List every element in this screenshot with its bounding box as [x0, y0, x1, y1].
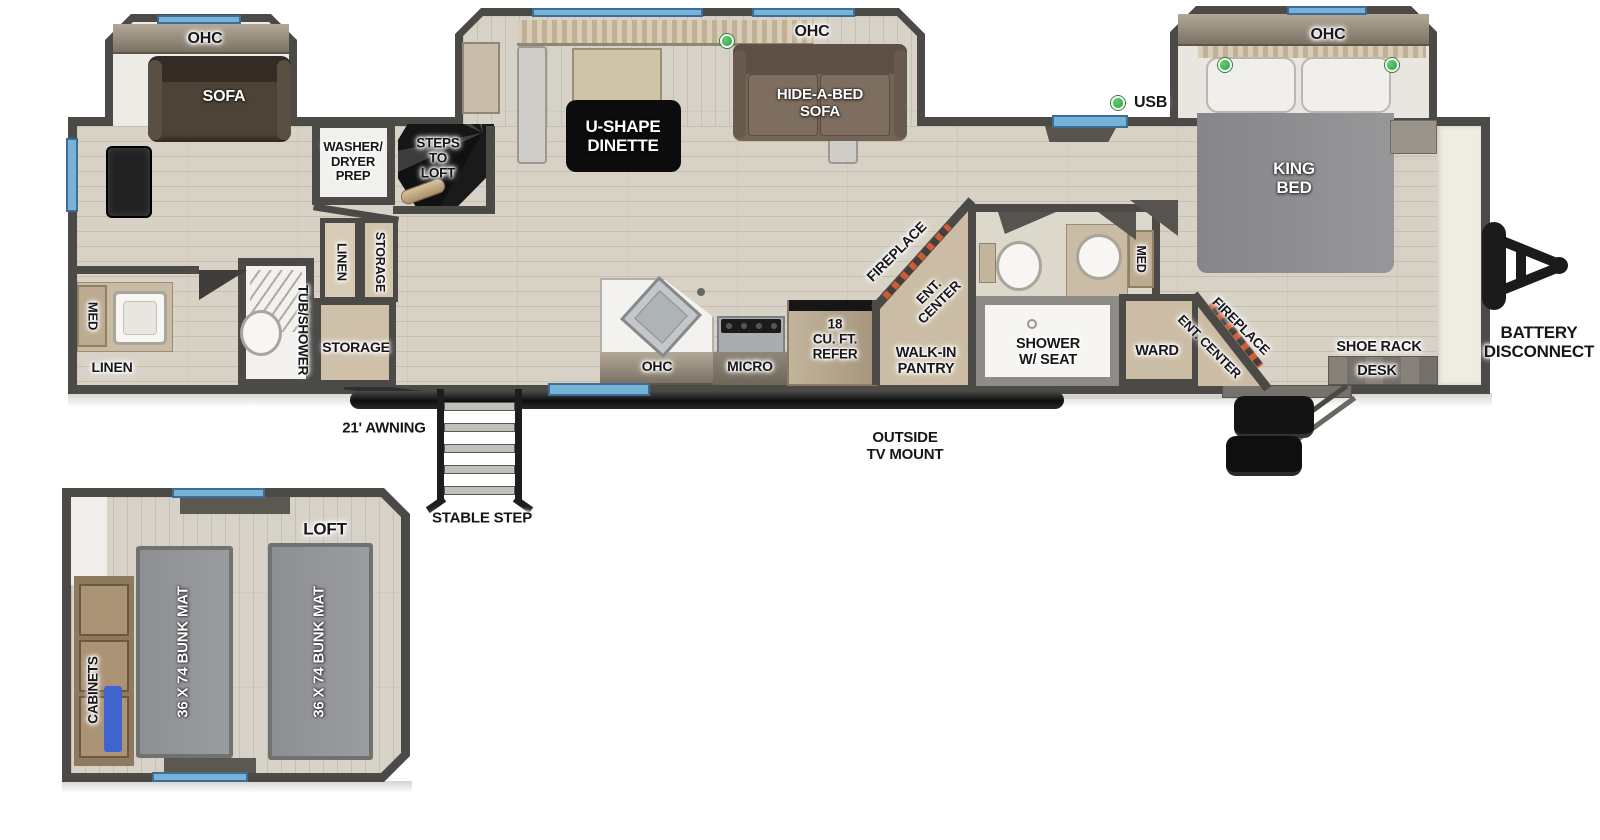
- refrigerator-top: [789, 300, 876, 311]
- steps-room-wall-bottom: [393, 206, 495, 214]
- hitch-coupler: [1550, 257, 1568, 274]
- stable-step-rail-left: [437, 389, 444, 503]
- mid-med-label: MED: [1134, 245, 1148, 272]
- hide-a-bed-arm-left: [733, 50, 746, 138]
- walk-in-pantry-label: WALK-IN PANTRY: [896, 345, 957, 377]
- outside-tv-label: OUTSIDE TV MOUNT: [867, 430, 944, 464]
- mid-toilet: [996, 241, 1042, 291]
- bedroom-shelf: [1390, 120, 1437, 154]
- rear-ohc-label: OHC: [188, 30, 223, 48]
- entry-step-1: [1234, 396, 1314, 438]
- rear-med-label: MED: [85, 302, 100, 330]
- kitchen-faucet: [697, 288, 705, 296]
- rear-sofa-arm-right: [277, 60, 291, 140]
- micro-label: MICRO: [727, 359, 773, 375]
- steps-to-loft-label: STEPS TO LOFT: [416, 135, 459, 180]
- rear-sofa-arm-left: [148, 60, 162, 140]
- mid-bath-sink: [1076, 234, 1122, 280]
- kitchen-sink-basin: [634, 290, 688, 344]
- shower-drain: [1027, 319, 1037, 329]
- ward-label: WARD: [1135, 343, 1179, 359]
- tub-shower-label: TUB/SHOWER: [295, 285, 310, 375]
- king-bed-label: KING BED: [1273, 159, 1315, 197]
- pantry-left-wall: [872, 300, 880, 385]
- dinette-cabinet: [462, 42, 500, 114]
- hide-a-bed-label: HIDE-A-BED SOFA: [777, 87, 863, 121]
- sofa-label: SOFA: [203, 88, 246, 106]
- loft-shadow: [62, 781, 412, 793]
- front-cap-floor: [1437, 126, 1481, 385]
- dinette-window-2: [752, 8, 855, 17]
- storage-room-label: STORAGE: [322, 340, 390, 356]
- rv-floorplan: OHC SOFA U-SHAPE DINETTE HIDE-A-BED SOFA…: [0, 0, 1600, 840]
- loft-label: LOFT: [303, 519, 347, 538]
- stable-step-label: STABLE STEP: [432, 511, 532, 528]
- mid-toilet-tank: [979, 243, 996, 283]
- entry-step-2: [1226, 436, 1302, 476]
- king-ohc-label: OHC: [1311, 26, 1346, 44]
- usb-dot-dinette: [720, 34, 734, 48]
- loft-ledge-top: [180, 497, 290, 514]
- steps-room-wall-right: [486, 126, 495, 212]
- loft-blue-item: [104, 686, 122, 752]
- stable-step-rung-2: [444, 423, 515, 432]
- battery-disconnect-label: BATTERY DISCONNECT: [1484, 323, 1594, 361]
- hide-a-bed-ohc-label: OHC: [795, 23, 830, 41]
- bottom-wall-window: [548, 383, 650, 396]
- usb-dot-entry: [1111, 96, 1125, 110]
- rear-tv: [106, 146, 152, 218]
- u-dinette-label: U-SHAPE DINETTE: [585, 117, 660, 155]
- stable-step-rung-3: [444, 444, 515, 453]
- king-ohc-cabinet: [1178, 14, 1429, 46]
- linen-closet-label: LINEN: [334, 243, 349, 281]
- loft-window-bottom: [152, 772, 248, 782]
- rear-linen-label: LINEN: [91, 360, 132, 376]
- cooktop: [721, 319, 781, 333]
- rear-bath-wall: [77, 266, 199, 274]
- usb-dot-bed-right: [1385, 58, 1399, 72]
- hide-a-bed-arm-right: [894, 50, 907, 138]
- dinette-blinds: [517, 20, 813, 46]
- entry-door-swing: [1045, 126, 1117, 142]
- usb-dot-bed-left: [1218, 58, 1232, 72]
- hitch-cross: [1516, 248, 1526, 282]
- shoe-rack-label: SHOE RACK: [1336, 339, 1421, 355]
- dinette-window-1: [532, 8, 703, 17]
- rear-bath-sink-basin: [123, 301, 157, 335]
- hide-a-bed-back: [733, 44, 907, 74]
- dinette-bench-left: [517, 46, 547, 164]
- loft-ledge-bottom: [164, 758, 256, 773]
- rear-slide-window: [157, 15, 241, 24]
- loft-window-top: [172, 488, 265, 498]
- cabinets-label: CABINETS: [85, 656, 100, 723]
- stable-step-rung-1: [444, 402, 515, 411]
- loft-cabinet-box-1: [79, 584, 129, 636]
- washer-dryer-label: WASHER/ DRYER PREP: [323, 140, 382, 184]
- rear-toilet: [240, 310, 282, 356]
- usb-label: USB: [1134, 94, 1167, 112]
- stable-step-rung-5: [444, 486, 515, 495]
- storage-closet-label: STORAGE: [373, 232, 387, 292]
- stable-step-rung-4: [444, 465, 515, 474]
- shower-seat-label: SHOWER W/ SEAT: [1016, 336, 1080, 368]
- loft-landing: [71, 497, 107, 585]
- awning-label: 21' AWNING: [342, 421, 426, 438]
- kitchen-ohc-label: OHC: [642, 359, 673, 375]
- king-pillow-right: [1301, 57, 1391, 113]
- stable-step-rail-right: [515, 389, 522, 503]
- rear-wall-window: [66, 138, 78, 212]
- bunk-mat-left-label: 36 X 74 BUNK MAT: [176, 586, 193, 718]
- bunk-mat-right-label: 36 X 74 BUNK MAT: [312, 586, 329, 718]
- refer-label: 18 CU. FT. REFER: [813, 316, 858, 361]
- desk-label: DESK: [1357, 363, 1397, 379]
- wardrobe: [1119, 294, 1199, 386]
- entry-window: [1052, 115, 1128, 128]
- king-slide-window: [1287, 6, 1367, 15]
